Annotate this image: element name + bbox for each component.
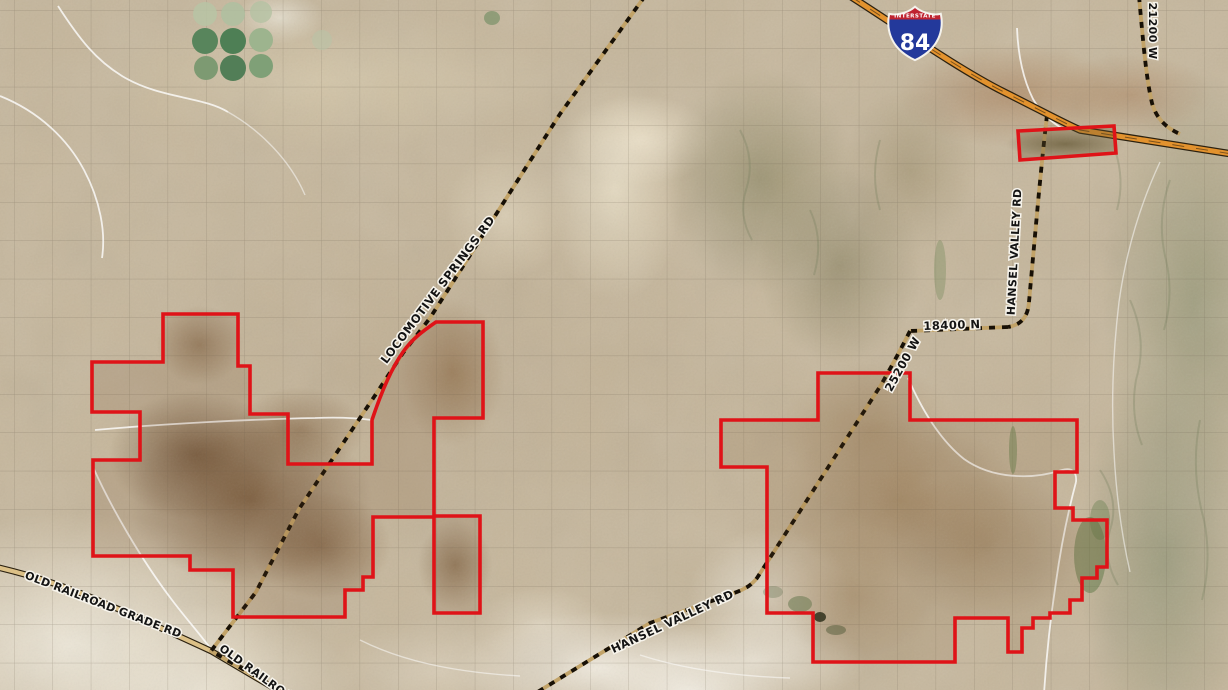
shield-interstate-text: INTERSTATE [894, 13, 936, 19]
map-viewport[interactable]: LOCOMOTIVE SPRINGS RDHANSEL VALLEY RD184… [0, 0, 1228, 690]
label-18400-n: 18400 N [923, 317, 981, 333]
label-21200-w: 21200 W [1146, 2, 1159, 59]
shield-route-number: 84 [900, 31, 931, 56]
map-overlay: LOCOMOTIVE SPRINGS RDHANSEL VALLEY RD184… [0, 0, 1228, 690]
fire-perimeter-northeast[interactable] [1018, 126, 1116, 160]
